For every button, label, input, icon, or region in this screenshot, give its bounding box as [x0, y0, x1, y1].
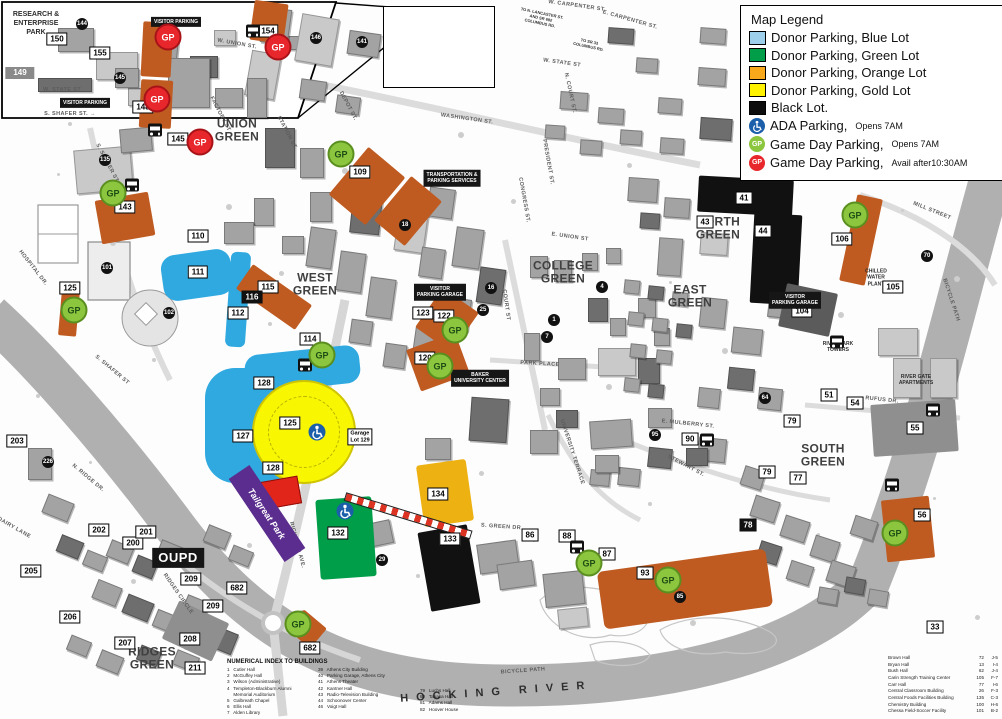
tree [268, 322, 272, 326]
building [785, 560, 814, 586]
building-number-102: 102 [163, 307, 175, 319]
tree [68, 122, 72, 126]
legend-swatch [749, 31, 766, 45]
building [657, 237, 684, 277]
legend-item: Donor Parking, Blue Lot [749, 30, 1002, 45]
building [607, 27, 634, 45]
building [530, 430, 558, 454]
street-label: PRESIDENT ST. [541, 139, 555, 185]
lot-badge-41: 41 [736, 192, 753, 205]
grid-ref: F-7 [984, 675, 998, 682]
tree [131, 579, 136, 584]
building [636, 57, 659, 73]
street-label: S. GREEN DR. [481, 523, 523, 532]
street-label: COURT ST [501, 289, 511, 321]
gameday-parking-marker-green: GP [328, 141, 355, 168]
lot-badge-128: 128 [262, 462, 283, 475]
tree [627, 163, 632, 168]
alpha-index-row: Chemistry Building100H-6 [888, 702, 998, 709]
bus-stop-icon [246, 25, 260, 38]
lot-badge-54: 54 [847, 397, 864, 410]
lot-badge-79: 79 [759, 466, 776, 479]
building [91, 579, 123, 607]
map-legend: Map Legend Donor Parking, Blue LotDonor … [740, 5, 1002, 181]
tree [901, 209, 904, 212]
gameday-parking-marker-green: GP [100, 180, 127, 207]
gameday-parking-marker-green: GP [427, 353, 454, 380]
alpha-index-row: Bush Hall62J-4 [888, 668, 998, 675]
lot-badge-128: 128 [253, 377, 274, 390]
lot-badge-43: 43 [697, 216, 714, 229]
building [657, 97, 682, 115]
grid-ref: J-4 [984, 668, 998, 675]
lot-badge-682: 682 [299, 642, 320, 655]
building-number: 13 [970, 662, 984, 669]
building [844, 576, 866, 595]
building [82, 549, 108, 572]
building [310, 192, 332, 222]
street-label: HOSPITAL DR. [17, 249, 48, 287]
lot-badge-105: 105 [882, 281, 903, 294]
street-label: S. SHAFER ST. → [44, 111, 96, 117]
lot-badge-44: 44 [755, 225, 772, 238]
building-name: Chessa Field-Soccer Facility [888, 708, 970, 715]
building [524, 333, 540, 361]
building-name: Chemistry Building [888, 702, 970, 709]
building [382, 343, 407, 370]
lot-badge-208: 208 [179, 633, 200, 646]
legend-item-sublabel: Opens 7AM [855, 121, 903, 131]
bus-stop-icon [885, 479, 899, 492]
building [282, 236, 304, 254]
building-number: 26 [970, 688, 984, 695]
legend-swatch [749, 66, 766, 80]
lot-badge-109: 109 [349, 166, 370, 179]
lot-badge-202: 202 [88, 524, 109, 537]
building [597, 107, 624, 125]
legend-item-sublabel: Opens 7AM [891, 139, 939, 149]
legend-item-label: Donor Parking, Orange Lot [771, 65, 926, 80]
street-label: S. SHAFER ST [94, 354, 131, 386]
gameday-parking-marker-green: GP [655, 567, 682, 594]
wheelchair-glyph [309, 424, 326, 441]
street-label: DAIRY LANE [0, 516, 32, 540]
lot-badge-116: 116 [242, 291, 263, 304]
lot-badge-149: 149 [5, 67, 34, 79]
building [727, 367, 755, 392]
legend-item-label: ADA Parking, [770, 118, 847, 133]
building-number: 101 [970, 708, 984, 715]
building-number: 77 [970, 682, 984, 689]
building-number: 72 [970, 655, 984, 662]
street-label: N. RIDGE DR. [71, 463, 106, 493]
numerical-index-column: 79 Luchs Hall 80 Tanaka Hall 81 Adams Ha… [420, 688, 458, 713]
building [469, 397, 510, 444]
building-number-146: 146 [310, 32, 322, 44]
lot-badge-209: 209 [180, 573, 201, 586]
building [365, 276, 396, 319]
building-name: Central Classroom Building [888, 688, 970, 695]
building [675, 323, 692, 339]
street-label: CONGRESS ST. [517, 177, 531, 223]
building [620, 129, 643, 145]
building-number-25: 25 [477, 304, 489, 316]
building-name: Carin Strength Training Center [888, 675, 970, 682]
building-name: Brown Hall [888, 655, 970, 662]
building-name: Bush Hall [888, 668, 970, 675]
building [254, 198, 274, 226]
building [41, 493, 74, 522]
gameday-parking-marker-green: GP [309, 342, 336, 369]
tree [152, 358, 156, 362]
building [779, 515, 811, 544]
building [647, 383, 664, 399]
building [867, 588, 889, 607]
grid-ref: F-3 [984, 688, 998, 695]
lot-badge-93: 93 [637, 567, 654, 580]
building [639, 212, 660, 229]
lot-badge-132: 132 [327, 527, 348, 540]
tree [975, 615, 980, 620]
legend-item: ADA Parking,Opens 7AM [749, 118, 1002, 134]
building [627, 177, 659, 203]
building [809, 535, 841, 564]
legend-item-label: Game Day Parking, [770, 137, 883, 152]
gameday-parking-marker-green: GP [61, 297, 88, 324]
ada-parking-icon [337, 503, 354, 520]
building [451, 226, 484, 270]
building [595, 455, 619, 473]
legend-item: Donor Parking, Green Lot [749, 48, 1002, 63]
street-label: E. MULBERRY ST. [661, 418, 714, 430]
lot-badge-111: 111 [188, 266, 208, 279]
legend-swatch [749, 101, 766, 115]
alpha-index-row: Chessa Field-Soccer Facility101B-2 [888, 708, 998, 715]
building [418, 246, 446, 279]
lot-badge-77: 77 [790, 472, 807, 485]
building-number-144: 144 [76, 18, 88, 30]
building-name: Bryan Hall [888, 662, 970, 669]
area-label: EAST GREEN [668, 283, 712, 308]
legend-item-sublabel: Avail after10:30AM [891, 158, 967, 168]
tree [954, 276, 960, 282]
building-number-18: 18 [399, 219, 411, 231]
gameday-parking-marker-green: GP [442, 317, 469, 344]
grid-ref: I-4 [984, 662, 998, 669]
tree [838, 312, 844, 318]
tree [690, 620, 696, 626]
legend-items: Donor Parking, Blue LotDonor Parking, Gr… [749, 30, 1002, 171]
building [623, 279, 640, 295]
tree [722, 348, 728, 354]
grid-ref: B-2 [984, 708, 998, 715]
bus-stop-icon [700, 434, 714, 447]
black-map-label: VISITOR PARKING [60, 98, 110, 108]
lot-badge-205: 205 [20, 565, 41, 578]
lot-badge-145: 145 [167, 133, 188, 146]
convocation-inner-ring [268, 396, 340, 468]
building-name: Central Foods Facilities Building [888, 695, 970, 702]
lot-badge-56: 56 [914, 509, 931, 522]
lot-badge-78: 78 [740, 519, 757, 532]
tree [606, 384, 612, 390]
building [659, 137, 684, 155]
bus-stop-icon [830, 336, 844, 349]
building [930, 358, 957, 398]
black-map-label: VISITOR PARKING GARAGE [414, 284, 466, 301]
building [168, 58, 210, 108]
gp-green-icon: GP [749, 136, 765, 152]
grid-ref: I-6 [984, 682, 998, 689]
lot-badge-110: 110 [188, 230, 209, 243]
street-label: WASHINGTON ST. [440, 112, 493, 125]
building-number-85: 85 [674, 591, 686, 603]
building [228, 544, 254, 567]
building-number-145: 145 [114, 72, 126, 84]
garage-lot-label: Garage Lot 129 [347, 428, 372, 445]
lot-badge-55: 55 [907, 422, 924, 435]
legend-item-label: Donor Parking, Green Lot [771, 48, 919, 63]
building [580, 139, 603, 155]
legend-swatch [749, 48, 766, 62]
alpha-index-row: Carr Hall77I-6 [888, 682, 998, 689]
numerical-index-column: 39 Athens City Building 40 Parking Garag… [318, 667, 385, 710]
building-number-135: 135 [99, 154, 111, 166]
building [817, 586, 839, 605]
building [300, 148, 324, 178]
legend-item-label: Donor Parking, Gold Lot [771, 83, 910, 98]
area-label: SOUTH GREEN [801, 442, 845, 467]
lot-badge-150: 150 [46, 33, 67, 46]
building-number: 105 [970, 675, 984, 682]
street-label: BICYCLE PATH [501, 666, 546, 675]
lot-badge-155: 155 [89, 47, 110, 60]
lot-badge-33: 33 [927, 621, 944, 634]
ada-parking-icon [309, 424, 326, 441]
tree [479, 471, 484, 476]
building [589, 419, 633, 450]
lot-badge-209: 209 [202, 600, 223, 613]
lot-badge-125: 125 [59, 282, 80, 295]
legend-item-label: Game Day Parking, [770, 155, 883, 170]
building [731, 327, 764, 356]
building [425, 438, 451, 460]
building-number-1: 1 [548, 314, 560, 326]
building [121, 593, 154, 622]
lot-badge-201: 201 [135, 526, 156, 539]
lot-badge-682: 682 [226, 582, 247, 595]
building [627, 311, 644, 327]
building [203, 524, 232, 550]
tree [89, 461, 92, 464]
building [849, 515, 878, 541]
lot-badge-79: 79 [784, 415, 801, 428]
gameday-parking-marker-green: GP [576, 550, 603, 577]
street-label: MILL STREET [912, 201, 952, 222]
building [623, 377, 640, 393]
gameday-parking-marker-red: GP [144, 86, 171, 113]
tree [648, 502, 652, 506]
street-label: PARK PLACE [520, 360, 560, 368]
parking-lot-rust [597, 548, 773, 629]
building-number-141: 141 [356, 36, 368, 48]
building-number-95: 95 [649, 429, 661, 441]
alphabetical-index: Brown Hall72J-5Bryan Hall13I-4Bush Hall6… [888, 655, 998, 715]
lot-badge-125: 125 [279, 417, 300, 430]
lot-badge-127: 127 [232, 430, 253, 443]
building [96, 649, 125, 675]
legend-item-label: Black Lot. [771, 100, 828, 115]
gp-red-icon: GP [749, 155, 765, 171]
map-annotation: TO N. LANCASTER ST. AND SR 682 COLUMBUS … [518, 6, 563, 30]
building-number-70: 70 [921, 250, 933, 262]
grid-ref: C-3 [984, 695, 998, 702]
legend-item: Black Lot. [749, 100, 1002, 115]
building-number: 62 [970, 668, 984, 675]
numerical-index-column: 1 Cutler Hall 2 McGuffey Hall 3 Wilson (… [227, 667, 292, 717]
bus-stop-icon [125, 179, 139, 192]
building [305, 226, 336, 269]
gameday-parking-marker-green: GP [882, 520, 909, 547]
lot-badge-90: 90 [682, 433, 699, 446]
building [542, 570, 585, 608]
gameday-parking-marker-red: GP [155, 24, 182, 51]
lot-badge-211: 211 [185, 662, 206, 675]
lot-badge-206: 206 [59, 611, 80, 624]
building-number-101: 101 [101, 262, 113, 274]
building [540, 388, 560, 406]
black-map-label: BAKER UNIVERSITY CENTER [451, 370, 509, 387]
lot-badge-106: 106 [831, 233, 852, 246]
wheelchair-glyph [337, 503, 354, 520]
grid-ref: H-6 [984, 702, 998, 709]
lot-badge-133: 133 [439, 533, 460, 546]
building [686, 448, 708, 466]
grid-ref: J-5 [984, 655, 998, 662]
lot-badge-207: 207 [114, 637, 135, 650]
building [348, 319, 373, 346]
building [588, 298, 608, 322]
legend-item: Donor Parking, Orange Lot [749, 65, 1002, 80]
building [878, 328, 918, 356]
street-label: UNIVERSITY TERRACE [559, 419, 586, 486]
area-label: COLLEGE GREEN [533, 259, 593, 284]
legend-item: GPGame Day Parking,Avail after10:30AM [749, 155, 1002, 171]
building [697, 387, 721, 409]
legend-item: Donor Parking, Gold Lot [749, 83, 1002, 98]
map-annotation: TO SR 33 COLUMBUS RD. [573, 36, 606, 52]
building-number-226: 226 [42, 456, 54, 468]
alpha-index-row: Central Classroom Building26F-3 [888, 688, 998, 695]
building [699, 117, 732, 141]
gameday-parking-marker-red: GP [265, 34, 292, 61]
building [606, 248, 621, 264]
street-label: BICYCLE PATH [941, 278, 960, 322]
building [699, 27, 726, 45]
building [617, 467, 641, 487]
building [610, 318, 626, 336]
lot-badge-203: 203 [6, 435, 27, 448]
building-number-4: 4 [596, 281, 608, 293]
building-number-7: 7 [541, 331, 553, 343]
building [335, 250, 366, 293]
alpha-index-row: Central Foods Facilities Building135C-3 [888, 695, 998, 702]
building-number-29: 29 [376, 554, 388, 566]
lot-badge-86: 86 [522, 529, 539, 542]
tree [247, 543, 252, 548]
black-map-label: VISITOR PARKING GARAGE [769, 292, 821, 309]
building [697, 67, 726, 87]
campus-map-canvas[interactable]: Tailgreat ParkUNION GREENWEST GREENCOLLE… [0, 0, 1002, 719]
inset-north-box [383, 6, 495, 88]
numerical-index-title: NUMERICAL INDEX TO BUILDINGS [227, 659, 327, 665]
building-name: Carr Hall [888, 682, 970, 689]
building-number: 135 [970, 695, 984, 702]
building [629, 343, 646, 359]
black-map-label: TRANSPORTATION & PARKING SERVICES [424, 170, 481, 187]
bus-stop-icon [926, 404, 940, 417]
legend-item: GPGame Day Parking,Opens 7AM [749, 136, 1002, 152]
area-label: WEST GREEN [293, 271, 337, 296]
gameday-parking-marker-green: GP [285, 611, 312, 638]
lot-badge-51: 51 [821, 389, 838, 402]
building [224, 222, 254, 244]
building-number-64: 64 [759, 392, 771, 404]
gameday-parking-marker-green: GP [842, 202, 869, 229]
oupd-label: OUPD [152, 548, 204, 568]
building-number-16: 16 [485, 282, 497, 294]
area-label: UNION GREEN [215, 117, 259, 142]
street-label: W. STATE ST [43, 87, 81, 93]
building-number: 100 [970, 702, 984, 709]
alpha-index-row: Bryan Hall13I-4 [888, 662, 998, 669]
legend-item-label: Donor Parking, Blue Lot [771, 30, 909, 45]
tree [458, 132, 464, 138]
building [663, 197, 690, 219]
building [56, 534, 85, 560]
building [557, 606, 589, 629]
gameday-parking-marker-red: GP [187, 129, 214, 156]
building [215, 88, 243, 108]
tree [226, 204, 232, 210]
building [299, 78, 328, 101]
street-label: W. STATE ST [543, 57, 582, 68]
building [545, 124, 566, 139]
street-label: E. UNION ST [551, 231, 589, 242]
building [558, 358, 586, 380]
building [247, 78, 267, 118]
map-annotation: RIVER GATE APARTMENTS [899, 374, 933, 387]
alpha-index-row: Carin Strength Training Center105F-7 [888, 675, 998, 682]
bus-stop-icon [148, 124, 162, 137]
tree [57, 173, 60, 176]
tree [416, 574, 420, 578]
lot-badge-112: 112 [228, 307, 249, 320]
tree [279, 271, 284, 276]
alpha-index-row: Brown Hall72J-5 [888, 655, 998, 662]
building [66, 634, 92, 657]
building [496, 560, 535, 591]
lot-badge-134: 134 [427, 488, 448, 501]
legend-title: Map Legend [751, 12, 1002, 27]
tree [36, 394, 40, 398]
ada-icon [749, 118, 765, 134]
lot-badge-123: 123 [412, 307, 433, 320]
building [655, 349, 672, 365]
tree [511, 199, 516, 204]
tree [933, 497, 936, 500]
building [651, 317, 668, 333]
